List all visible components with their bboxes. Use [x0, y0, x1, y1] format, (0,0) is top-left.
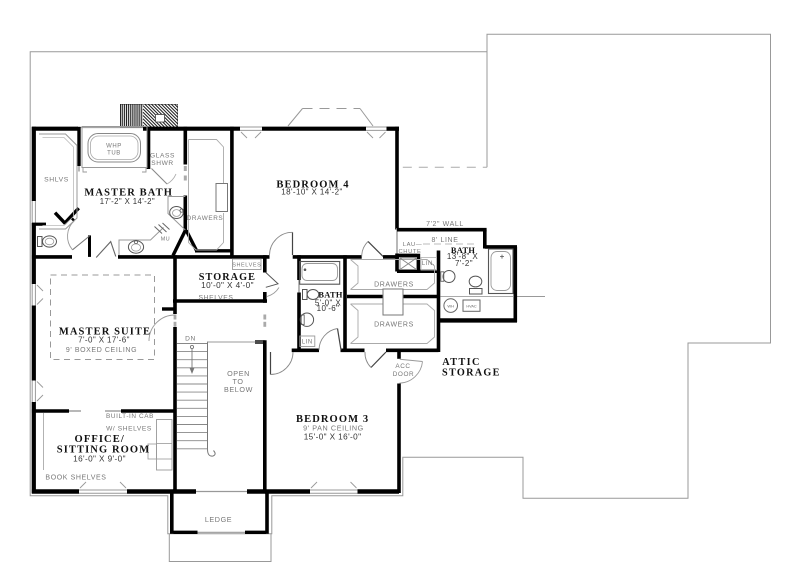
- svg-text:WH: WH: [447, 303, 454, 308]
- svg-text:16'-0" X 9'-0": 16'-0" X 9'-0": [73, 455, 126, 464]
- svg-text:ATTIC: ATTIC: [442, 357, 481, 368]
- svg-text:9' PAN CEILING: 9' PAN CEILING: [303, 423, 364, 432]
- svg-text:GLASS: GLASS: [150, 153, 175, 160]
- svg-text:DRAWERS: DRAWERS: [374, 282, 414, 289]
- svg-text:DOOR: DOOR: [393, 371, 415, 378]
- svg-text:W/ SHELVES: W/ SHELVES: [106, 426, 152, 433]
- svg-text:TUB: TUB: [107, 151, 121, 157]
- svg-text:SHELVES: SHELVES: [232, 263, 261, 269]
- svg-text:OFFICE/: OFFICE/: [75, 434, 125, 445]
- svg-text:MU: MU: [161, 237, 171, 243]
- svg-text:BELOW: BELOW: [224, 385, 253, 394]
- svg-text:SHWR: SHWR: [151, 160, 174, 167]
- svg-text:7'-0" X 17'-6": 7'-0" X 17'-6": [78, 336, 130, 345]
- svg-text:ACC: ACC: [395, 363, 410, 370]
- svg-text:17'-2" X 14'-2": 17'-2" X 14'-2": [100, 197, 155, 206]
- svg-text:10'-0" X 4'-0": 10'-0" X 4'-0": [201, 281, 254, 290]
- svg-text:9' BOXED CEILING: 9' BOXED CEILING: [66, 347, 137, 354]
- svg-text:BOOK SHELVES: BOOK SHELVES: [45, 475, 106, 482]
- svg-text:SHELVES: SHELVES: [198, 295, 233, 302]
- svg-text:WHP: WHP: [106, 144, 122, 150]
- svg-text:SHLVS: SHLVS: [44, 177, 69, 184]
- svg-text:LIN: LIN: [302, 339, 313, 345]
- svg-text:7'-2": 7'-2": [455, 259, 473, 268]
- svg-text:BUILT-IN CAB: BUILT-IN CAB: [106, 413, 154, 420]
- svg-text:7'2" WALL: 7'2" WALL: [426, 221, 464, 228]
- svg-text:10'-6": 10'-6": [317, 304, 340, 313]
- svg-text:18'-10" X 14'-2": 18'-10" X 14'-2": [281, 188, 342, 197]
- svg-text:LAU—: LAU—: [403, 242, 422, 248]
- svg-text:8' LINE: 8' LINE: [432, 237, 459, 244]
- svg-text:DRAWERS: DRAWERS: [374, 322, 414, 329]
- svg-text:HVAC: HVAC: [466, 305, 477, 309]
- svg-text:STORAGE: STORAGE: [442, 367, 501, 378]
- svg-text:LIN.: LIN.: [422, 261, 435, 267]
- svg-text:DN: DN: [185, 336, 196, 343]
- svg-text:LEDGE: LEDGE: [205, 515, 232, 524]
- svg-text:DRAWERS: DRAWERS: [187, 215, 224, 222]
- svg-text:15'-0" X 16'-0": 15'-0" X 16'-0": [304, 432, 362, 441]
- svg-text:CHUTE: CHUTE: [399, 249, 422, 255]
